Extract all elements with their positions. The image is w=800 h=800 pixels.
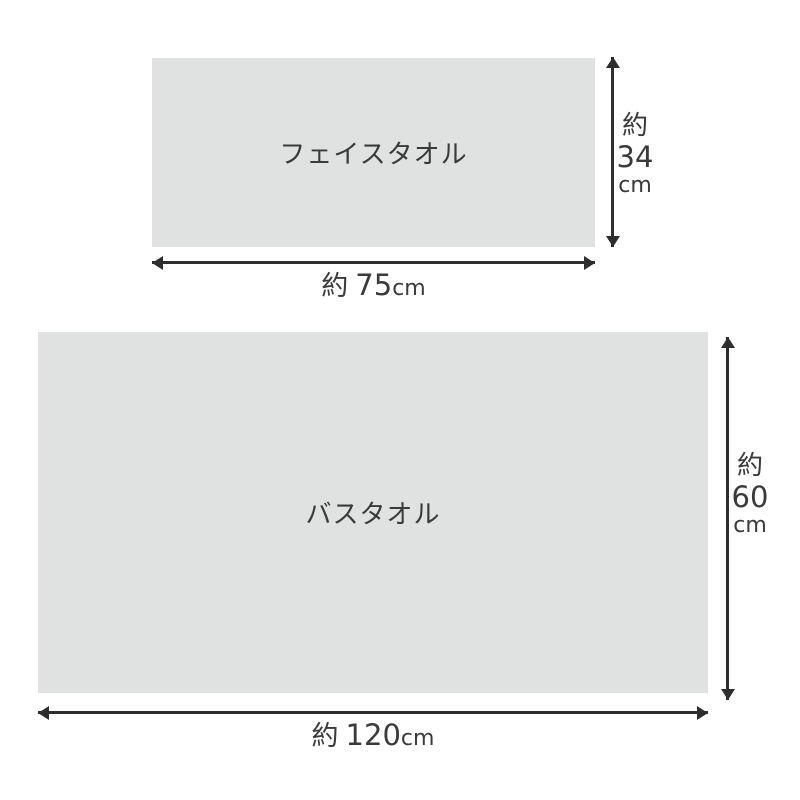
face-towel-label: フェイスタオル xyxy=(279,134,467,171)
face-towel-width-label: 約 75 cm xyxy=(152,264,595,303)
height-value: 60 xyxy=(732,481,769,513)
approx-prefix: 約 xyxy=(737,452,763,481)
width-unit: cm xyxy=(392,276,426,301)
bath-towel-height-label: 約 60 cm xyxy=(715,452,785,538)
height-unit: cm xyxy=(618,174,652,199)
face-towel-height-label: 約 34 cm xyxy=(600,112,670,198)
approx-prefix: 約 xyxy=(321,264,348,303)
bath-towel-label: バスタオル xyxy=(305,494,440,531)
face-towel-rect: フェイスタオル xyxy=(152,58,595,247)
width-value: 75 xyxy=(355,268,392,302)
approx-prefix: 約 xyxy=(312,714,339,753)
width-value: 120 xyxy=(346,718,401,752)
approx-prefix: 約 xyxy=(622,112,648,141)
bath-towel-width-label: 約 120 cm xyxy=(38,714,708,753)
height-value: 34 xyxy=(617,141,654,173)
width-unit: cm xyxy=(401,726,435,751)
towel-size-diagram: フェイスタオル 約 75 cm 約 34 cm バスタオル 約 120 cm 約… xyxy=(0,0,800,800)
height-unit: cm xyxy=(733,514,767,539)
bath-towel-rect: バスタオル xyxy=(38,332,708,693)
